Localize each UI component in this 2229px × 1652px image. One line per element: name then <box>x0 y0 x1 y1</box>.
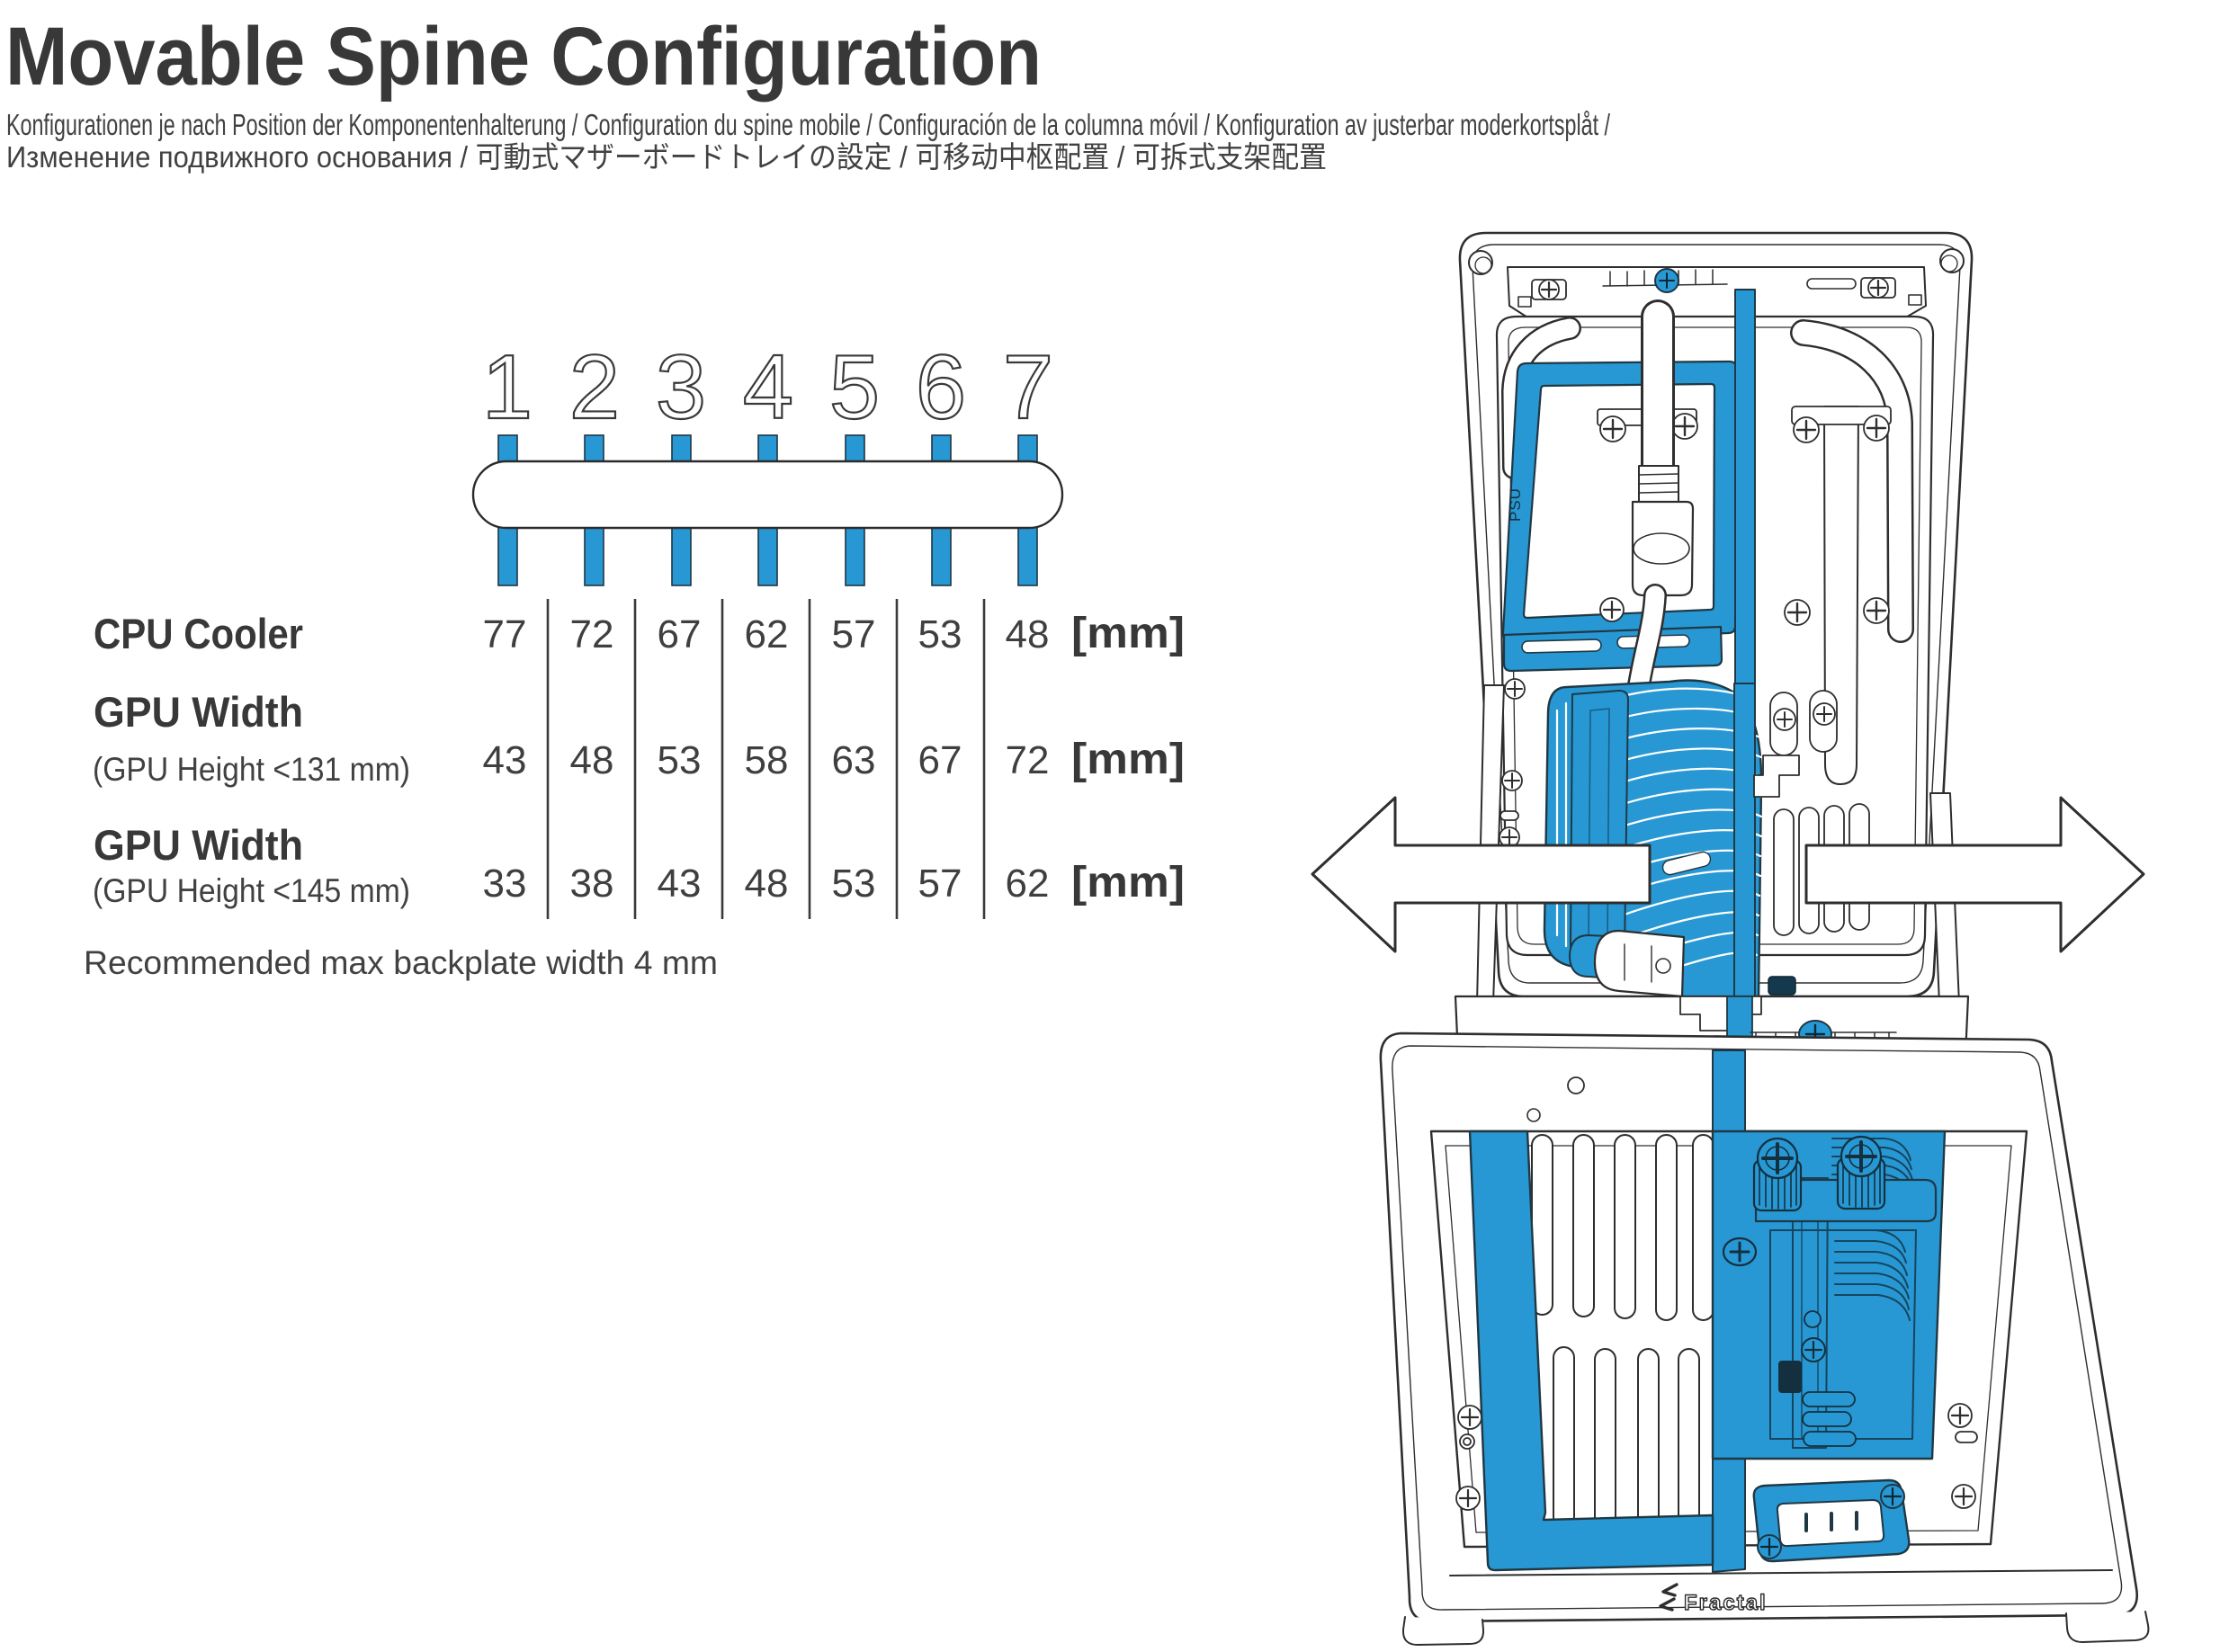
svg-text:4: 4 <box>743 337 793 438</box>
svg-text:33: 33 <box>483 862 527 906</box>
svg-text:5: 5 <box>829 337 880 438</box>
svg-text:(GPU Height <145 mm): (GPU Height <145 mm) <box>93 872 410 909</box>
svg-text:67: 67 <box>918 738 962 782</box>
svg-text:72: 72 <box>1006 738 1050 782</box>
svg-text:63: 63 <box>832 738 876 782</box>
svg-text:3: 3 <box>656 337 706 438</box>
svg-text:GPU Width: GPU Width <box>94 688 303 736</box>
svg-text:Fractal: Fractal <box>1684 1591 1768 1615</box>
svg-text:6: 6 <box>916 337 966 438</box>
svg-text:Movable Spine Configuration: Movable Spine Configuration <box>5 11 1042 103</box>
svg-text:[mm]: [mm] <box>1071 859 1185 906</box>
svg-text:62: 62 <box>745 612 789 656</box>
svg-text:48: 48 <box>745 862 789 906</box>
svg-text:43: 43 <box>483 738 527 782</box>
svg-text:1: 1 <box>482 337 533 438</box>
svg-text:48: 48 <box>570 738 614 782</box>
svg-text:62: 62 <box>1006 862 1050 906</box>
svg-text:CPU Cooler: CPU Cooler <box>94 610 303 657</box>
svg-text:[mm]: [mm] <box>1071 610 1185 657</box>
svg-text:53: 53 <box>918 612 962 656</box>
svg-text:67: 67 <box>658 612 702 656</box>
svg-text:Изменение подвижного основания: Изменение подвижного основания / 可動式マザーボ… <box>6 140 1327 174</box>
svg-text:57: 57 <box>918 862 962 906</box>
svg-text:PSU: PSU <box>1507 487 1524 522</box>
svg-text:58: 58 <box>745 738 789 782</box>
svg-text:2: 2 <box>569 337 620 438</box>
svg-text:48: 48 <box>1006 612 1050 656</box>
svg-text:77: 77 <box>483 612 527 656</box>
svg-text:53: 53 <box>832 862 876 906</box>
svg-text:72: 72 <box>570 612 614 656</box>
svg-text:38: 38 <box>570 862 614 906</box>
svg-text:[mm]: [mm] <box>1071 736 1185 783</box>
svg-text:Konfigurationen je nach Positi: Konfigurationen je nach Position der Kom… <box>6 108 1611 141</box>
svg-text:53: 53 <box>658 738 702 782</box>
svg-text:7: 7 <box>1003 337 1053 438</box>
svg-text:Recommended max backplate widt: Recommended max backplate width 4 mm <box>84 944 718 981</box>
svg-text:GPU Width: GPU Width <box>94 821 303 869</box>
svg-text:43: 43 <box>658 862 702 906</box>
svg-text:(GPU Height <131 mm): (GPU Height <131 mm) <box>93 751 410 788</box>
svg-text:57: 57 <box>832 612 876 656</box>
